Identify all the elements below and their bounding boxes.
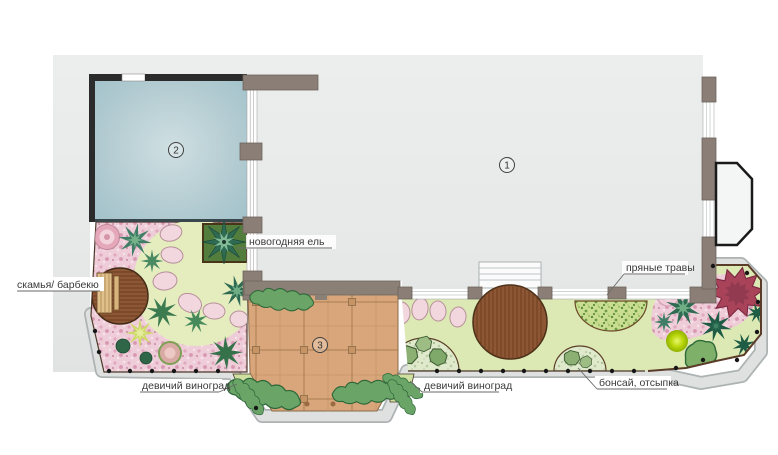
label-herbs: пряные травы [626, 262, 695, 274]
bay-window [716, 163, 752, 245]
callout-bench: скамья/ барбекю [14, 277, 104, 291]
callout-spruce: новогодняя ель [237, 235, 336, 249]
landscape-plan-page: скамья/ барбекю новогодняя ель девичий в… [0, 0, 778, 455]
label-bonsai: бонсай, отсыпка [599, 377, 679, 389]
area-marker-terrace-number: 2 [173, 146, 179, 157]
area-marker-pergola-number: 3 [317, 341, 323, 352]
label-bench: скамья/ барбекю [17, 279, 99, 291]
steps [479, 262, 541, 288]
area-marker-pergola: 3 [313, 338, 328, 353]
label-spruce: новогодняя ель [249, 236, 325, 248]
site-plan-svg: скамья/ барбекю новогодняя ель девичий в… [0, 0, 778, 455]
spruce-bed [202, 220, 247, 264]
callout-grapes-center: девичий виноград [410, 379, 512, 393]
label-grapes-left: девичий виноград [142, 380, 230, 392]
left-garden-bed [90, 220, 259, 377]
wood-deck-strip [473, 283, 547, 361]
callout-grapes-left: девичий виноград [138, 379, 237, 393]
lime-accent-plant [666, 330, 688, 352]
area-marker-terrace: 2 [169, 143, 184, 158]
area-marker-house: 1 [500, 158, 515, 173]
area-marker-house-number: 1 [504, 161, 510, 172]
label-grapes-center: девичий виноград [424, 380, 512, 392]
